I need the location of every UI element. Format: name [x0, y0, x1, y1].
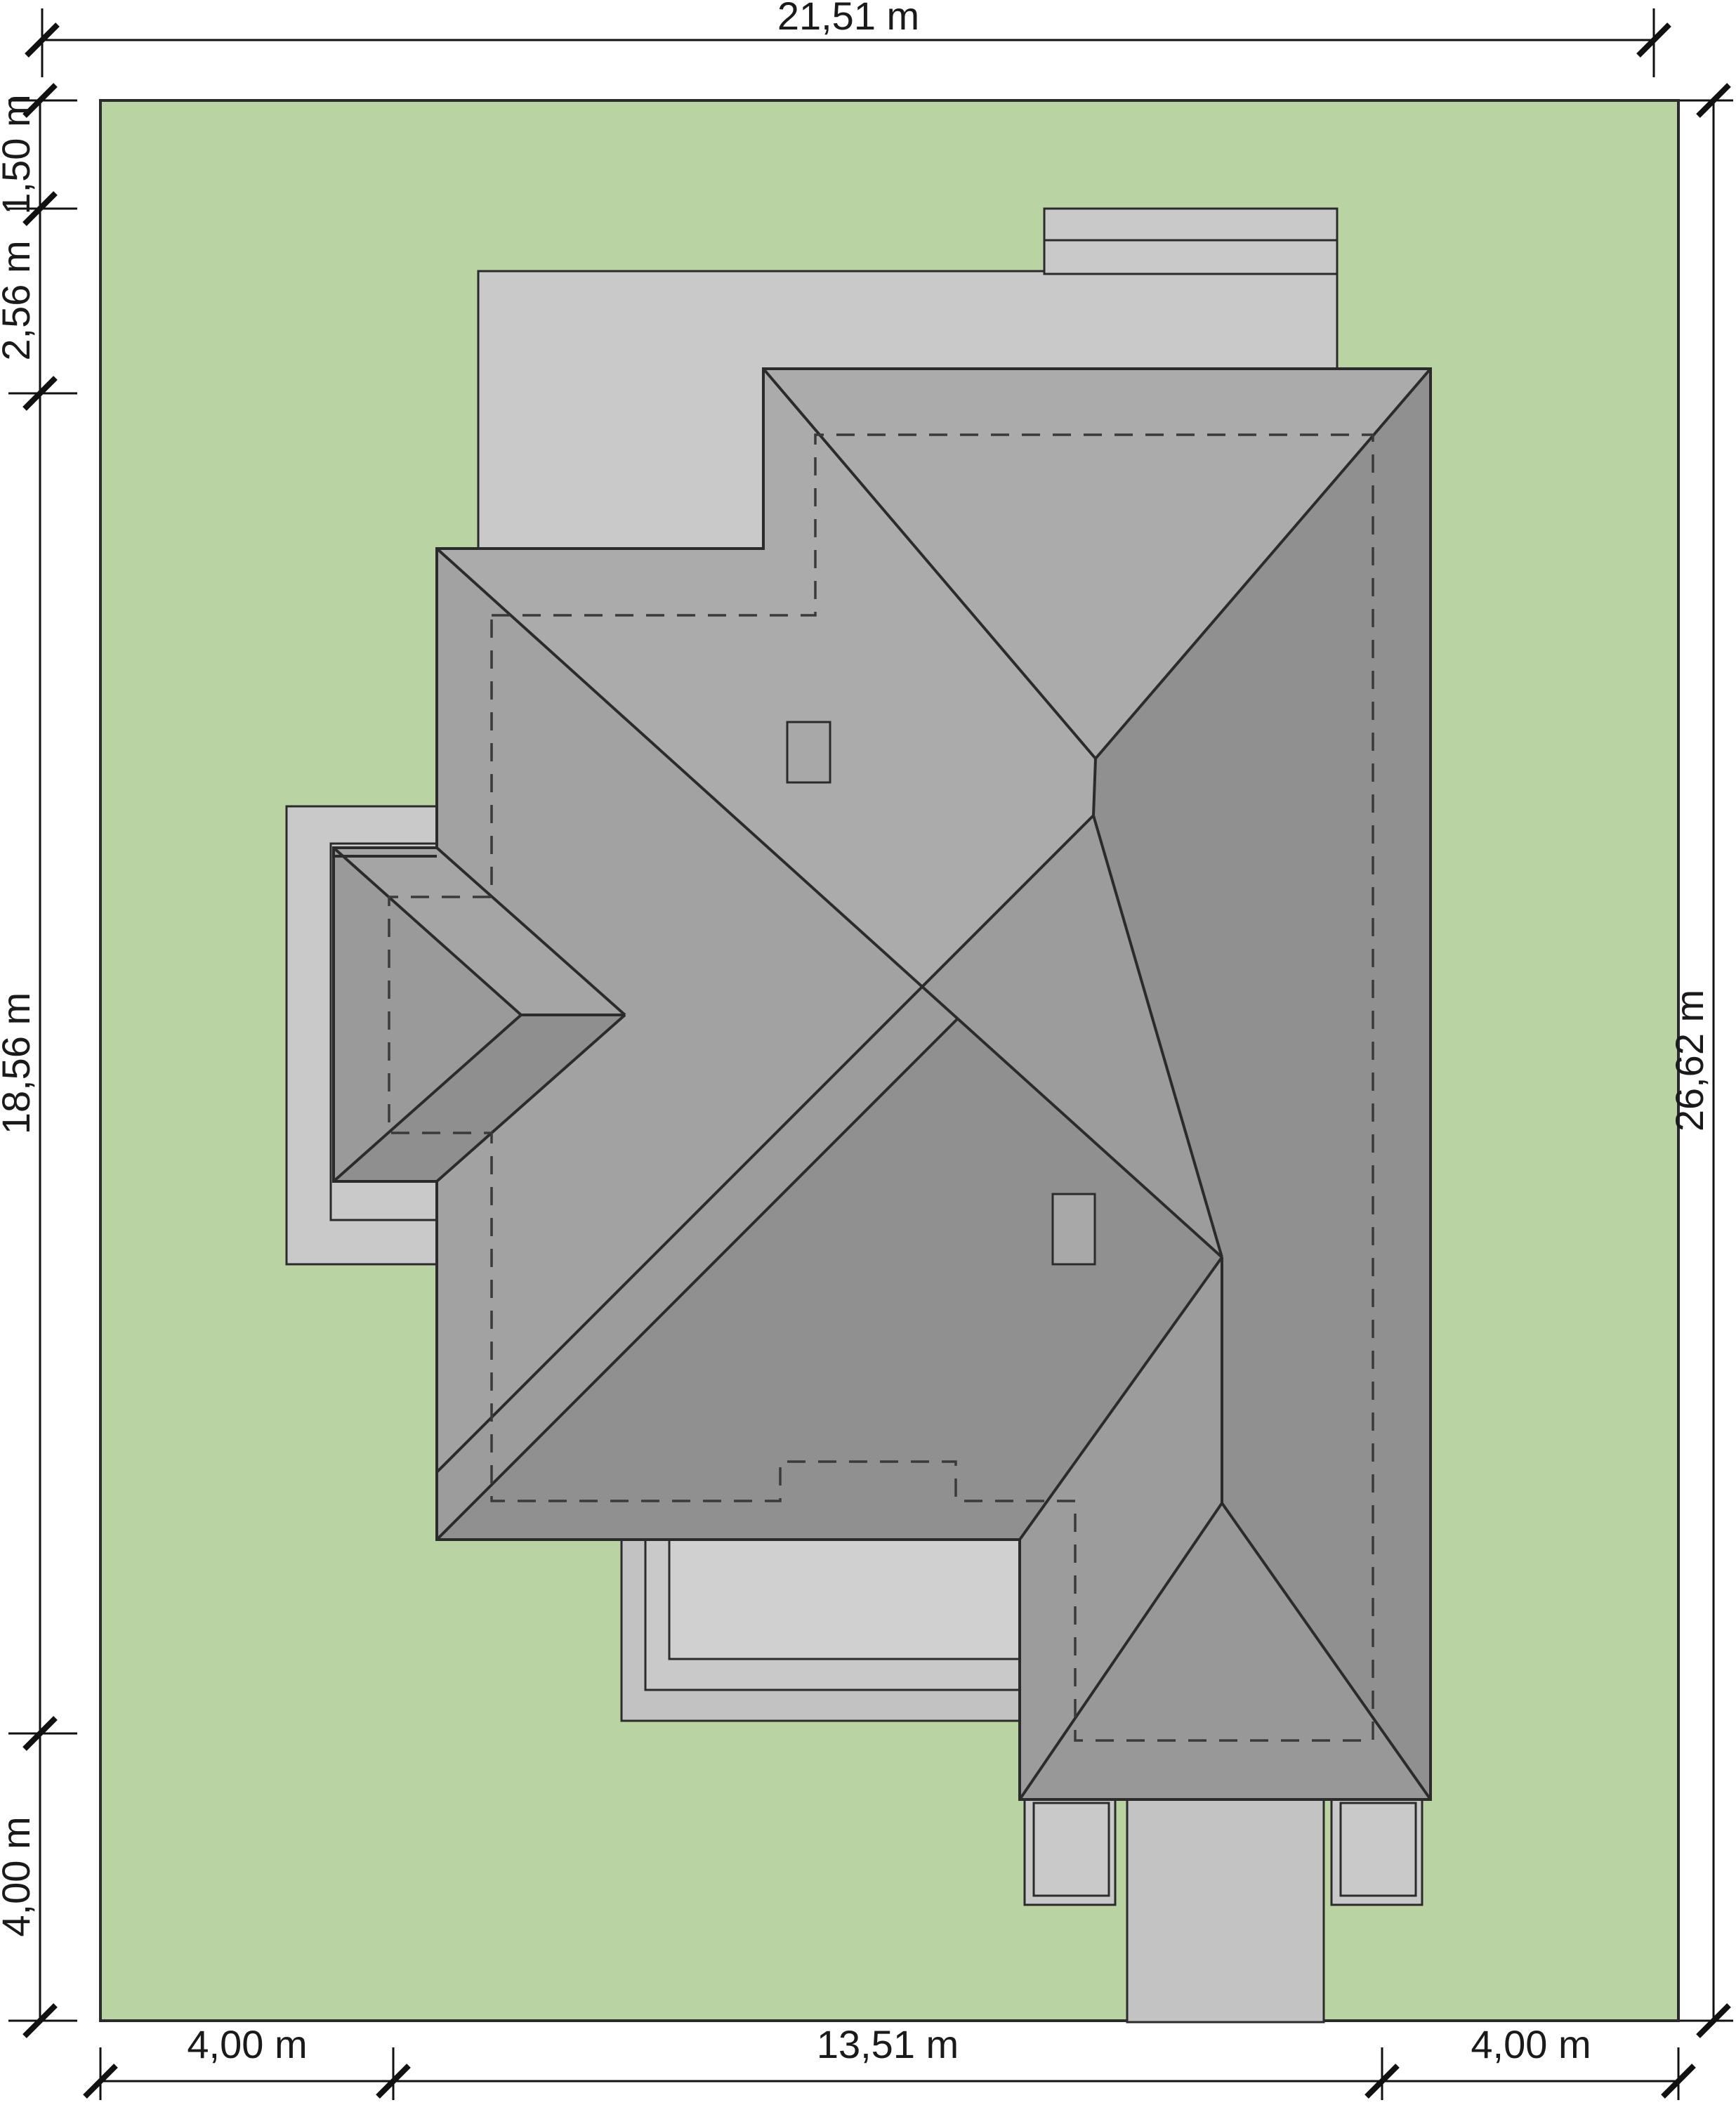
- dim-label-left-3: 18,56 m: [0, 992, 38, 1134]
- skylight-left: [787, 722, 830, 782]
- dim-label-bottom-1: 4,00 m: [187, 2022, 307, 2066]
- dim-label-bottom-3: 4,00 m: [1471, 2022, 1591, 2066]
- dim-label-left-2: 2,56 m: [0, 240, 38, 360]
- skylight-right: [1053, 1194, 1095, 1264]
- driveway: [1127, 1799, 1324, 2022]
- dim-label-left-1: 1,50 m: [0, 94, 38, 214]
- dim-label-top-width: 21,51 m: [777, 0, 919, 38]
- dim-label-right-height: 26,62 m: [1667, 990, 1711, 1132]
- site-plan-canvas: 21,51 m 1,50 m 2,56 m 18,56 m 4,00 m 26,…: [0, 0, 1736, 2105]
- bottom-terrace-inner: [669, 1540, 1022, 1659]
- dim-label-left-4: 4,00 m: [0, 1816, 38, 1936]
- garage-post-right: [1331, 1799, 1422, 1905]
- garage-post-left: [1025, 1799, 1115, 1905]
- dim-label-bottom-2: 13,51 m: [817, 2022, 959, 2066]
